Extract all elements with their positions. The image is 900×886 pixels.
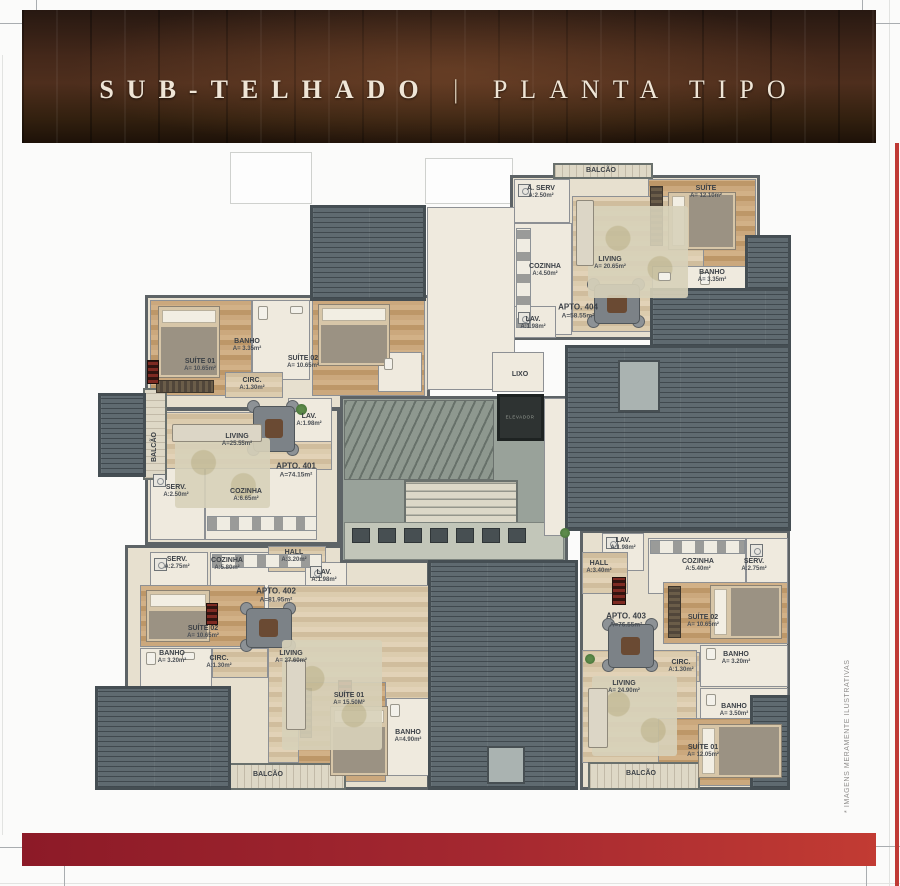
- room-label-apt401-cozinha: COZINHA A:6.65m²: [230, 488, 262, 504]
- page-edge-left: [2, 55, 3, 835]
- toilet: [706, 648, 716, 660]
- toilet: [390, 704, 400, 717]
- plant: [560, 528, 570, 538]
- core-side-strip: [544, 398, 566, 536]
- apt402-label: APTO. 402 A=81.95m²: [256, 586, 296, 603]
- room-label-apt403-circ: CIRC. A:1.30m²: [668, 659, 693, 675]
- room-label-apt404-banho: BANHO A= 3.35m²: [698, 269, 727, 285]
- title-right: PLANTA TIPO: [493, 75, 799, 104]
- room-label-apt404-lav: LAV. A:1.98m²: [520, 316, 545, 332]
- room-label-apt404-living: LIVING A= 20.65m²: [594, 256, 626, 272]
- sink: [290, 306, 303, 314]
- kitchen-counter: [207, 516, 317, 531]
- room-label-apt403-banho: BANHO A= 3.20m²: [722, 651, 751, 667]
- footer-red-bar: [22, 833, 876, 866]
- room-label-apt403-serv: SERV. A:2.75m²: [741, 558, 766, 574]
- room-label-apt401-serv: SERV. A:2.50m²: [163, 484, 188, 500]
- room-label-apt402-suite02: SUÍTE 02 A= 10.65m²: [187, 625, 219, 641]
- page-title: SUB-TELHADO | PLANTA TIPO: [99, 49, 798, 105]
- corridor: [344, 522, 564, 560]
- room-label-apt401-living: LIVING A=25.55m²: [222, 433, 252, 449]
- room-label-apt401-balcao: BALCÃO: [151, 432, 159, 462]
- toilet: [258, 306, 268, 320]
- appliance-stack: [147, 360, 159, 384]
- disclaimer-note: * IMAGENS MERAMENTE ILUSTRATIVAS: [844, 638, 858, 834]
- lower-floor-outline: [425, 158, 513, 204]
- room-label-apt401-banho: BANHO A= 3.35m²: [233, 338, 262, 354]
- bed: [710, 585, 782, 639]
- corridor-cabinet: [482, 528, 500, 543]
- toilet: [146, 652, 156, 665]
- toilet: [706, 694, 716, 706]
- sofa: [286, 660, 306, 730]
- room-label-apt402-suite01: SUÍTE 01 A= 15.50M²: [333, 692, 365, 708]
- apt402-balcao-floor: [228, 763, 346, 790]
- room-label-apt404-suite: SUÍTE A= 12.10m²: [690, 185, 722, 201]
- room-label-apt403-balcao: BALCÃO: [626, 770, 656, 778]
- page-edge-right: [889, 0, 890, 886]
- room-label-apt404-balcao: BALCÃO: [586, 167, 616, 175]
- room-label-apt402-banho: BANHO A= 3.20m²: [158, 650, 187, 666]
- lower-floor-outline: [230, 152, 312, 204]
- washing-machine: [750, 544, 763, 557]
- room-label-apt402-serv: SERV. A:2.75m²: [164, 556, 189, 572]
- corridor-cabinet: [404, 528, 422, 543]
- room-label-apt402-lav: LAV. A:1.98m²: [311, 569, 336, 585]
- room-label-apt402-circ: CIRC. A:1.30m²: [206, 655, 231, 671]
- corridor-cabinet: [430, 528, 448, 543]
- title-left: SUB-TELHADO: [99, 75, 431, 104]
- room-label-apt403-cozinha: COZINHA A:5.40m²: [682, 558, 714, 574]
- room-label-apt401-suite02: SUÍTE 02 A= 10.65m²: [287, 355, 319, 371]
- room-label-apt402-living: LIVING A= 27.60m²: [275, 650, 307, 666]
- kitchen-counter: [650, 540, 745, 554]
- brochure-sheet: SUB-TELHADO | PLANTA TIPO * IMAGENS MERA…: [0, 0, 900, 886]
- roof-right-main: [565, 345, 791, 531]
- apt404-label: APTO. 404 A=58.55m²: [558, 302, 598, 319]
- roof-right-corner: [745, 235, 791, 291]
- corridor-cabinet: [456, 528, 474, 543]
- room-label-apt402-balcao: BALCÃO: [253, 771, 283, 779]
- red-edge-line: [895, 143, 899, 886]
- appliance-stack: [206, 603, 218, 625]
- apt401-label: APTO. 401 A=74.15m²: [276, 461, 316, 478]
- stairs-upper-flight: [344, 400, 494, 480]
- corridor-cabinet: [352, 528, 370, 543]
- room-label-apt403-suite01: SUÍTE 01 A= 12.05m²: [687, 744, 719, 760]
- page-edge-bottom: [0, 883, 900, 884]
- room-label-lixo: LIXO: [512, 371, 528, 379]
- room-label-apt403-banho2: BANHO A= 3.50m²: [720, 703, 749, 719]
- dining-table: [608, 624, 653, 668]
- rug: [588, 206, 688, 298]
- room-label-apt401-circ: CIRC. A:1.30m²: [239, 377, 264, 393]
- appliance-stack: [612, 577, 626, 605]
- room-label-apt403-suite02: SUÍTE 02 A= 10.65m²: [687, 614, 719, 630]
- room-label-apt404-aserv: A. SERV A:2.50m²: [527, 185, 555, 201]
- roof-left-strip: [98, 393, 146, 477]
- room-label-apt403-lav: LAV. A:1.98m²: [610, 537, 635, 553]
- room-label-apt402-hall: HALL A:3.20m²: [281, 549, 306, 565]
- apt403-label: APTO. 403 A=76.55m²: [606, 611, 646, 628]
- roof-top-center: [310, 205, 426, 301]
- sofa: [588, 688, 608, 748]
- sofa: [576, 200, 594, 266]
- bed: [318, 304, 390, 366]
- roof-skylight: [487, 746, 525, 784]
- sink: [658, 272, 671, 281]
- elevator-label: ELEVADOR: [506, 415, 535, 419]
- room-label-apt402-cozinha: COZINHA A:5.80m²: [211, 557, 243, 573]
- title-banner: SUB-TELHADO | PLANTA TIPO: [22, 10, 876, 143]
- room-label-apt403-hall: HALL A:3.40m²: [586, 560, 611, 576]
- corridor-cabinet: [378, 528, 396, 543]
- room-label-apt401-lav: LAV. A:1.98m²: [296, 413, 321, 429]
- wardrobe: [668, 586, 681, 638]
- room-label-apt403-living: LIVING A= 24.90m²: [608, 680, 640, 696]
- toilet: [384, 358, 393, 370]
- room-label-apt402-banho2: BANHO A=4.90m²: [395, 729, 422, 745]
- elevator-shaft: ELEVADOR: [497, 394, 544, 441]
- corridor-cabinet: [508, 528, 526, 543]
- roof-skylight: [618, 360, 660, 412]
- room-label-apt404-cozinha: COZINHA A:4.50m²: [529, 263, 561, 279]
- room-label-apt401-suite01: SUÍTE 01 A= 10.65m²: [184, 358, 216, 374]
- wardrobe: [156, 380, 214, 393]
- roof-bottom-left: [95, 686, 231, 790]
- plant: [585, 654, 595, 664]
- title-separator: |: [451, 75, 473, 104]
